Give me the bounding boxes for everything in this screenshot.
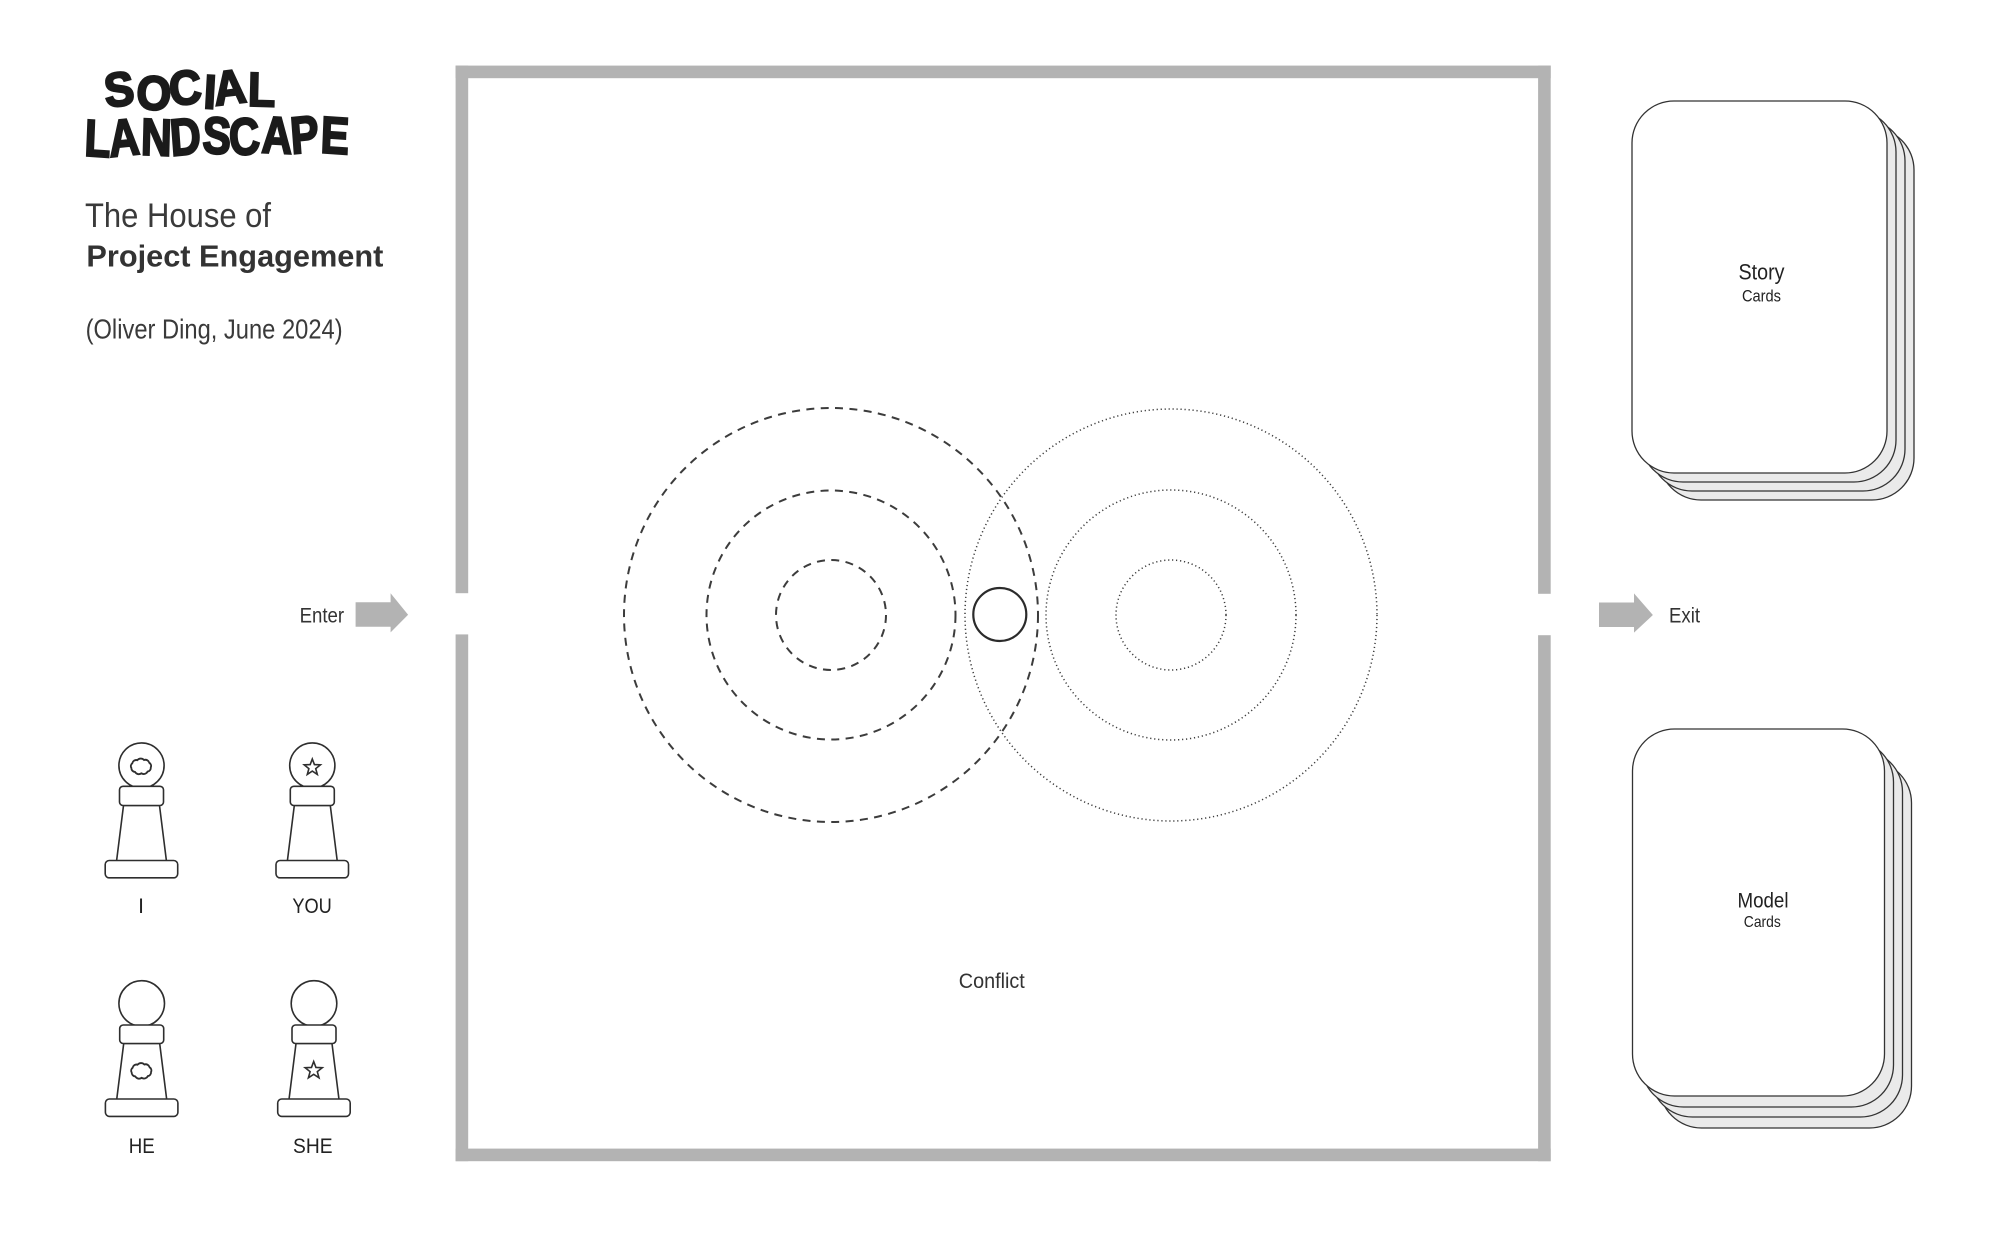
svg-text:(Oliver Ding, June 2024): (Oliver Ding, June 2024)	[86, 314, 343, 345]
svg-text:Project Engagement: Project Engagement	[86, 239, 383, 274]
svg-text:Story: Story	[1739, 260, 1785, 285]
svg-text:Conflict: Conflict	[959, 969, 1025, 993]
svg-text:YOU: YOU	[292, 895, 332, 918]
svg-text:Model: Model	[1738, 889, 1789, 913]
svg-text:Exit: Exit	[1669, 604, 1700, 628]
svg-text:Enter: Enter	[300, 604, 345, 628]
svg-text:HE: HE	[129, 1135, 155, 1158]
svg-text:The House of: The House of	[85, 197, 271, 235]
svg-text:I: I	[138, 895, 144, 918]
svg-text:Cards: Cards	[1744, 914, 1781, 931]
svg-text:LANDSCAPE: LANDSCAPE	[82, 104, 352, 171]
svg-text:SHE: SHE	[293, 1135, 333, 1158]
svg-text:Cards: Cards	[1742, 287, 1781, 305]
